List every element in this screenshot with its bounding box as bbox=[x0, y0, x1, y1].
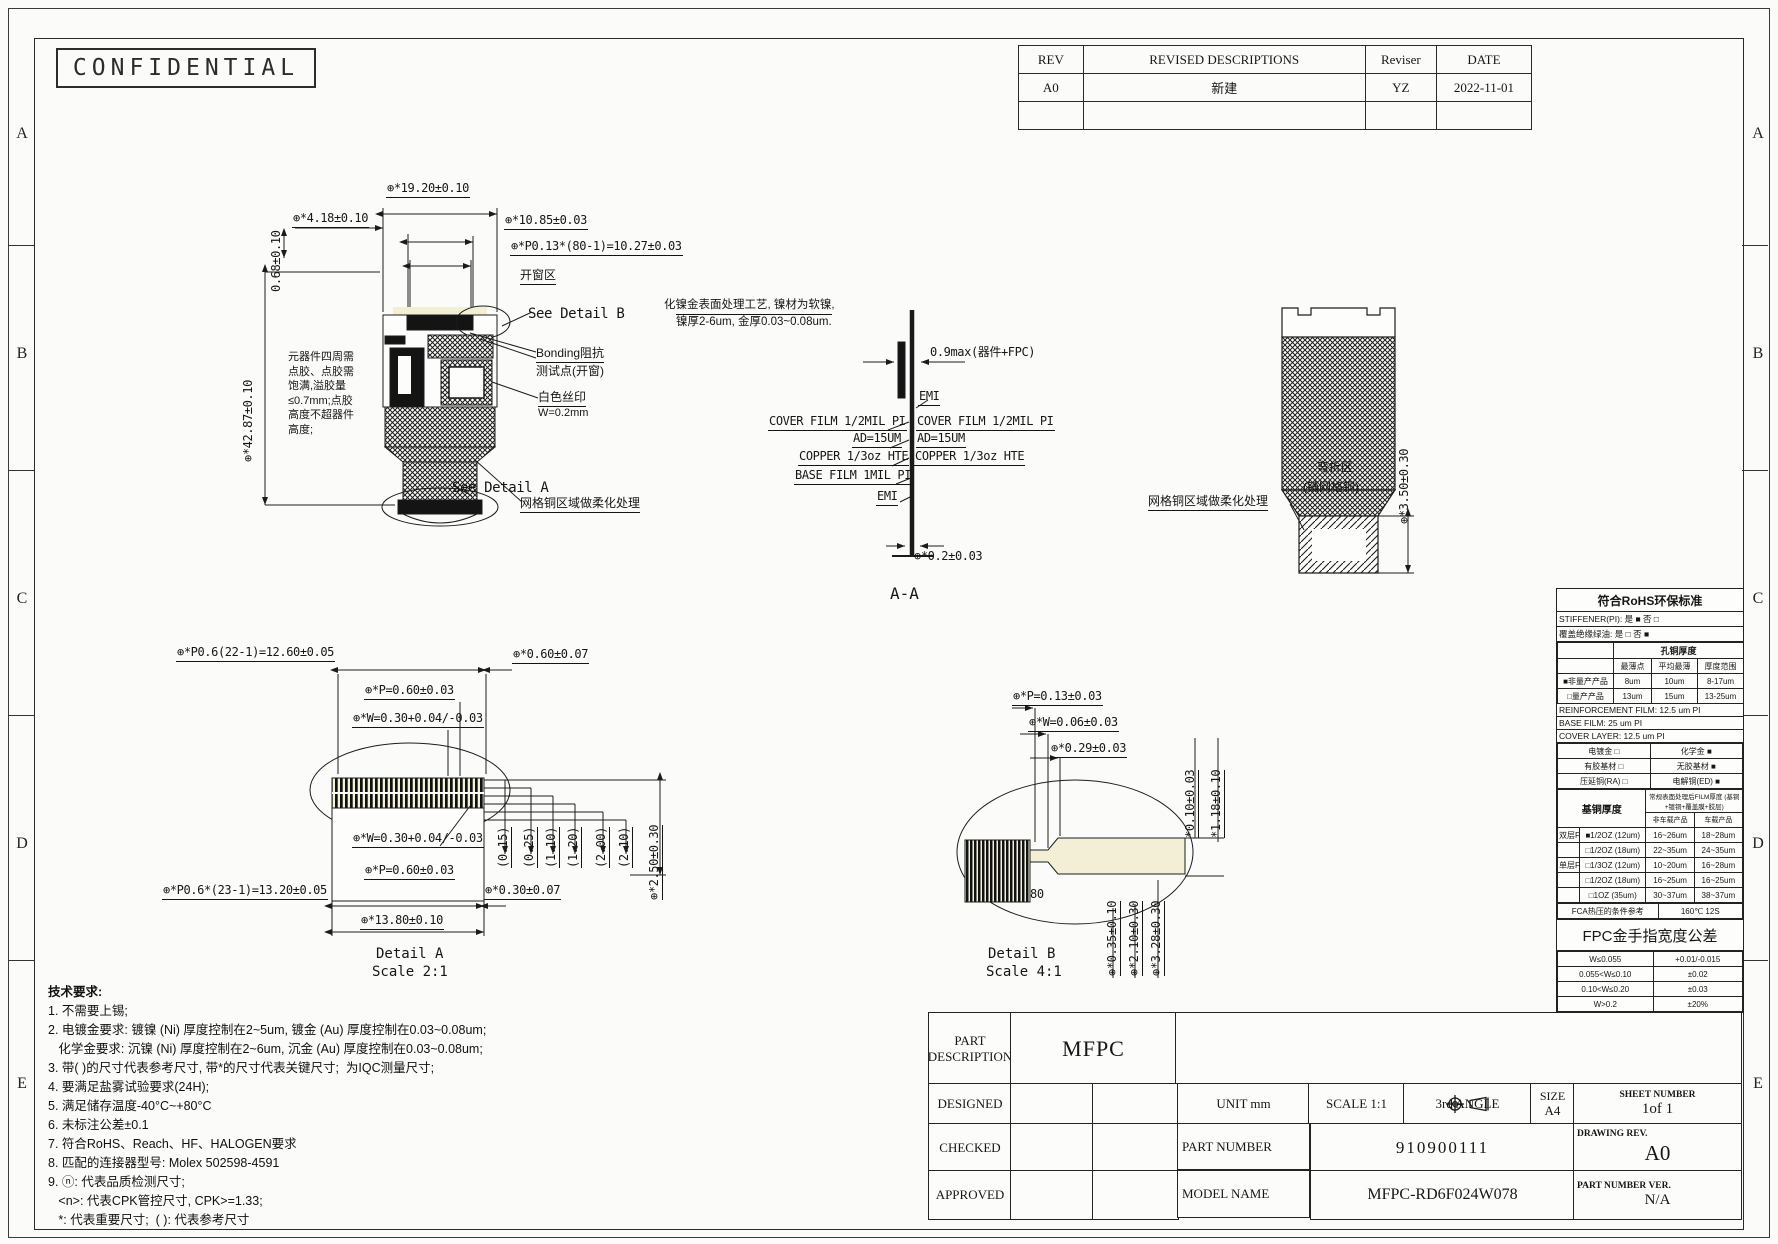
list-item: 3. 带( )的尺寸代表参考尺寸, 带*的尺寸代表关键尺寸; 为IQC测量尺寸; bbox=[48, 1059, 638, 1078]
fca-label: FCA热压的条件参考 bbox=[1558, 904, 1659, 919]
list-item: 4. 要满足盐雾试验要求(24H); bbox=[48, 1078, 638, 1097]
revision-header-row: REV REVISED DESCRIPTIONS Reviser DATE bbox=[1019, 46, 1532, 74]
table-cell: 无胶基材 ■ bbox=[1650, 759, 1743, 774]
table-cell: 15um bbox=[1652, 689, 1698, 704]
zone-tick bbox=[8, 715, 34, 716]
drawing-rev-label: DRAWING REV. bbox=[1574, 1129, 1648, 1140]
detail-b-dim-b2: ⊕*2.10±0.30 bbox=[1128, 901, 1143, 976]
reviser-header: Reviser bbox=[1365, 46, 1436, 74]
list-item: 高度不超器件 bbox=[288, 408, 380, 423]
zone-letter-right-a: A bbox=[1748, 125, 1768, 143]
table-cell: 16~28um bbox=[1694, 858, 1742, 873]
approved-label: APPROVED bbox=[928, 1170, 1012, 1220]
zone-letter-left-a: A bbox=[12, 125, 32, 143]
window-area-label: 开窗区 bbox=[520, 268, 556, 285]
section-dim-thickness: ⊕*0.2±0.03 bbox=[914, 550, 982, 564]
zone-tick bbox=[1742, 960, 1768, 961]
film-lines: REINFORCEMENT FILM: 12.5 um PIBASE FILM:… bbox=[1557, 704, 1743, 743]
detail-a-step-dim-2: (0.25) bbox=[523, 827, 538, 868]
scale-cell: SCALE 1:1 bbox=[1308, 1083, 1405, 1125]
detail-a-step-dim-5: (2.00) bbox=[595, 827, 610, 868]
detail-b-conductor-count: 80 bbox=[1030, 888, 1044, 902]
part-description-label: PART DESCRIPTION bbox=[928, 1012, 1012, 1085]
table-row: ■非量产产品8um10um8-17um bbox=[1558, 674, 1744, 689]
detail-a-dim-width-in: ⊕*W=0.30+0.04/-0.03 bbox=[352, 832, 484, 848]
list-item: STIFFENER(PI): 是 ■ 否 □ bbox=[1557, 612, 1743, 627]
surface-note-line2: 镍厚2-6um, 金厚0.03~0.08um. bbox=[676, 314, 832, 330]
table-cell bbox=[1558, 888, 1580, 903]
layer-coverfilm-left: COVER FILM 1/2MIL PI bbox=[768, 415, 907, 431]
description-value: 新建 bbox=[1083, 74, 1365, 102]
layer-ad-left: AD=15UM bbox=[852, 432, 902, 448]
table-row: 0.10<W≤0.20±0.03 bbox=[1558, 982, 1743, 997]
list-item: REINFORCEMENT FILM: 12.5 um PI bbox=[1557, 704, 1743, 717]
mesh-copper-label: 网格铜区域做柔化处理 bbox=[520, 496, 640, 513]
layer-basefilm-left: BASE FILM 1MIL PI bbox=[794, 469, 912, 485]
unit-cell: UNIT mm bbox=[1177, 1083, 1310, 1125]
detail-a-dim-total-width: ⊕*13.80±0.10 bbox=[360, 914, 444, 930]
table-row: 单层FPC□1/3OZ (12um)10~20um16~28um bbox=[1558, 858, 1743, 873]
detail-b-dim-gap: *0.10±0.03 bbox=[1184, 770, 1199, 838]
plan-dim-pitch: ⊕*P0.13*(80-1)=10.27±0.03 bbox=[510, 240, 683, 256]
table-cell: ■1/2OZ (12um) bbox=[1580, 828, 1646, 843]
see-detail-b-label: See Detail B bbox=[528, 306, 624, 322]
finger-tolerance-table: W≤0.055+0.01/-0.0150.055<W≤0.10±0.020.10… bbox=[1557, 951, 1743, 1012]
list-item: 化学金要求: 沉镍 (Ni) 厚度控制在2~6um, 沉金 (Au) 厚度控制在… bbox=[48, 1040, 638, 1059]
layer-emi-left: EMI bbox=[876, 490, 898, 506]
spec-table: 符合RoHS环保标准 STIFFENER(PI): 是 ■ 否 □覆盖绝缘绿油:… bbox=[1556, 588, 1744, 1013]
size-label: SIZE bbox=[1540, 1089, 1565, 1103]
base-copper-table: 基铜厚度 常规表面处理后FILM厚度 (基铜+镀铜+覆盖膜+胶层) 非车载产品 … bbox=[1557, 789, 1743, 903]
part-number-ver-label: PART NUMBER VER. bbox=[1574, 1181, 1671, 1192]
size-cell: SIZE A4 bbox=[1530, 1083, 1575, 1125]
table-row: 压延铜(RA) □电解铜(ED) ■ bbox=[1558, 774, 1743, 789]
plan-dim-offset: ⊕*4.18±0.10 bbox=[292, 212, 369, 228]
detail-a-dim-pitch-total-top: ⊕*P0.6(22-1)=12.60±0.05 bbox=[176, 646, 335, 662]
table-cell: ±0.02 bbox=[1653, 967, 1742, 982]
sheet-cell: SHEET NUMBER 1of 1 bbox=[1573, 1083, 1742, 1125]
list-item: 2. 电镀金要求: 镀镍 (Ni) 厚度控制在2~5um, 镀金 (Au) 厚度… bbox=[48, 1021, 638, 1040]
table-cell: 0.10<W≤0.20 bbox=[1558, 982, 1654, 997]
detail-b-dim-width: ⊕*W=0.06±0.03 bbox=[1028, 716, 1119, 732]
detail-a-step-dim-6: (2.10) bbox=[618, 827, 633, 868]
table-cell: 22~35um bbox=[1646, 843, 1694, 858]
list-item: COVER LAYER: 12.5 um PI bbox=[1557, 730, 1743, 743]
tech-notes: 技术要求: 1. 不需要上锡;2. 电镀金要求: 镀镍 (Ni) 厚度控制在2~… bbox=[48, 983, 638, 1230]
bend-mesh-label: 网格铜区域做柔化处理 bbox=[1148, 494, 1268, 511]
layer-emi-right: EMI bbox=[918, 390, 940, 406]
list-item: 饱满,溢胶量 bbox=[288, 379, 380, 394]
detail-b-dim-b1: ⊕*0.35±0.10 bbox=[1106, 901, 1121, 976]
zone-letter-right-e: E bbox=[1748, 1075, 1768, 1093]
table-cell: 8um bbox=[1614, 674, 1652, 689]
table-cell: 16~26um bbox=[1646, 828, 1694, 843]
table-cell: 10um bbox=[1652, 674, 1698, 689]
designed-date bbox=[1092, 1083, 1179, 1125]
detail-b-dim-b3: ⊕*3.28±0.30 bbox=[1150, 901, 1165, 976]
table-cell: 38~37um bbox=[1694, 888, 1742, 903]
table-cell: 24~35um bbox=[1694, 843, 1742, 858]
tech-notes-lines: 1. 不需要上锡;2. 电镀金要求: 镀镍 (Ni) 厚度控制在2~5um, 镀… bbox=[48, 1002, 638, 1230]
silkscreen-label-2: W=0.2mm bbox=[538, 406, 588, 420]
detail-a-dim-pitch-total-bottom: ⊕*P0.6*(23-1)=13.20±0.05 bbox=[162, 884, 328, 900]
size-value: A4 bbox=[1545, 1103, 1561, 1119]
detail-b-dim-height: *1.18±0.10 bbox=[1210, 770, 1225, 838]
table-cell: 有胶基材 □ bbox=[1558, 759, 1651, 774]
bend-zone-label-1: 弯折区 bbox=[1317, 460, 1353, 476]
table-cell: □量产产品 bbox=[1558, 689, 1614, 704]
see-detail-a-label: See Detail A bbox=[452, 480, 548, 496]
layer-coverfilm-right: COVER FILM 1/2MIL PI bbox=[916, 415, 1055, 431]
detail-a-step-dim-4: (1.20) bbox=[567, 827, 582, 868]
zone-letter-left-d: D bbox=[12, 835, 32, 853]
base-copper-h1: 基铜厚度 bbox=[1558, 790, 1646, 828]
reviser-value: YZ bbox=[1365, 74, 1436, 102]
section-caption: A-A bbox=[890, 584, 919, 603]
hole-copper-table: 孔铜厚度 最薄点 平均最薄 厚度范围 ■非量产产品8um10um8-17um□量… bbox=[1557, 642, 1744, 704]
list-item: 高度; bbox=[288, 423, 380, 438]
revision-empty-row bbox=[1019, 102, 1532, 130]
bend-view-drawing bbox=[1140, 290, 1440, 590]
list-item: BASE FILM: 25 um PI bbox=[1557, 717, 1743, 730]
table-cell: ±20% bbox=[1653, 997, 1742, 1012]
base-copper-h2: 常规表面处理后FILM厚度 (基铜+镀铜+覆盖膜+胶层) bbox=[1646, 790, 1743, 813]
drawing-rev-cell: DRAWING REV. A0 bbox=[1573, 1123, 1742, 1172]
date-value: 2022-11-01 bbox=[1436, 74, 1531, 102]
table-cell: 0.055<W≤0.10 bbox=[1558, 967, 1654, 982]
fca-table: FCA热压的条件参考 160℃ 12S bbox=[1557, 903, 1743, 919]
list-item: 点胶、点胶需 bbox=[288, 365, 380, 380]
list-item: 1. 不需要上锡; bbox=[48, 1002, 638, 1021]
bonding-label-2: 测试点(开窗) bbox=[536, 364, 604, 380]
table-cell: □1/3OZ (12um) bbox=[1580, 858, 1646, 873]
table-cell: 电镀金 □ bbox=[1558, 744, 1651, 759]
table-row: □1/2OZ (18um)16~25um16~25um bbox=[1558, 873, 1743, 888]
table-cell: □1/2OZ (18um) bbox=[1580, 873, 1646, 888]
table-cell: 电解铜(ED) ■ bbox=[1650, 774, 1743, 789]
plan-dim-edge: 0.68±0.10 bbox=[270, 231, 283, 292]
hole-copper-title: 孔铜厚度 bbox=[1614, 643, 1744, 659]
date-header: DATE bbox=[1436, 46, 1531, 74]
drawing-rev-value: A0 bbox=[1645, 1141, 1671, 1166]
zone-tick bbox=[8, 470, 34, 471]
table-cell bbox=[1558, 843, 1580, 858]
rev-header: REV bbox=[1019, 46, 1084, 74]
table-row: 有胶基材 □无胶基材 ■ bbox=[1558, 759, 1743, 774]
layer-copper-right: COPPER 1/3oz HTE bbox=[914, 450, 1025, 466]
sheet-number-label: SHEET NUMBER bbox=[1619, 1090, 1695, 1101]
zone-letter-left-c: C bbox=[12, 590, 32, 608]
section-dim-max: 0.9max(器件+FPC) bbox=[930, 346, 1035, 360]
designed-label: DESIGNED bbox=[928, 1083, 1012, 1125]
table-row: □1/2OZ (18um)22~35um24~35um bbox=[1558, 843, 1743, 858]
checked-signature bbox=[1010, 1123, 1094, 1172]
table-cell: 双层FPC bbox=[1558, 828, 1580, 843]
plan-dim-length: ⊕*42.87±0.10 bbox=[242, 380, 255, 462]
table-cell: □1/2OZ (18um) bbox=[1580, 843, 1646, 858]
table-cell: W>0.2 bbox=[1558, 997, 1654, 1012]
table-row: 双层FPC■1/2OZ (12um)16~26um18~28um bbox=[1558, 828, 1743, 843]
bend-zone-label-2: (铺网格铜) bbox=[1303, 480, 1359, 496]
table-row: W≤0.055+0.01/-0.015 bbox=[1558, 952, 1743, 967]
part-description-value: MFPC bbox=[1010, 1012, 1177, 1085]
bend-dim-height: ⊕*3.50±0.30 bbox=[1398, 449, 1411, 524]
revision-row: A0 新建 YZ 2022-11-01 bbox=[1019, 74, 1532, 102]
list-item: 元器件四周需 bbox=[288, 350, 380, 365]
zone-letter-left-b: B bbox=[12, 345, 32, 363]
zone-letter-right-c: C bbox=[1748, 590, 1768, 608]
detail-a-dim-pitch-in: ⊕*P=0.60±0.03 bbox=[364, 864, 455, 880]
sheet-number-value: 1of 1 bbox=[1642, 1101, 1673, 1118]
detail-a-dim-pad-width: ⊕*0.30±0.07 bbox=[484, 884, 561, 900]
approved-date bbox=[1092, 1170, 1179, 1220]
list-item: <n>: 代表CPK管控尺寸, CPK>=1.33; bbox=[48, 1192, 638, 1211]
detail-a-dim-height: ⊕*2.50±0.30 bbox=[648, 825, 663, 900]
table-cell: 18~28um bbox=[1694, 828, 1742, 843]
zone-letter-right-b: B bbox=[1748, 345, 1768, 363]
table-cell: 10~20um bbox=[1646, 858, 1694, 873]
zone-tick bbox=[1742, 245, 1768, 246]
part-number-ver-cell: PART NUMBER VER. N/A bbox=[1573, 1170, 1742, 1220]
list-item: 覆盖绝缘绿油: 是 □ 否 ■ bbox=[1557, 627, 1743, 642]
table-cell: 单层FPC bbox=[1558, 858, 1580, 873]
zone-tick bbox=[8, 960, 34, 961]
detail-a-dim-width-top: ⊕*W=0.30+0.04/-0.03 bbox=[352, 712, 484, 728]
designed-signature bbox=[1010, 1083, 1094, 1125]
finger-tolerance-title: FPC金手指宽度公差 bbox=[1557, 919, 1743, 951]
detail-b-dim-pitch: ⊕*P=0.13±0.03 bbox=[1012, 690, 1103, 706]
list-item: 8. 匹配的连接器型号: Molex 502598-4591 bbox=[48, 1154, 638, 1173]
zone-letter-left-e: E bbox=[12, 1075, 32, 1093]
detail-a-step-dim-3: (1.10) bbox=[545, 827, 560, 868]
table-cell: 16~25um bbox=[1694, 873, 1742, 888]
bonding-label-1: Bonding阻抗 bbox=[536, 346, 604, 363]
rohs-title: 符合RoHS环保标准 bbox=[1557, 589, 1743, 612]
layer-copper-left: COPPER 1/3oz HTE bbox=[798, 450, 909, 466]
silkscreen-label-1: 白色丝印 bbox=[538, 390, 586, 407]
title-block: PART DESCRIPTION MFPC DESIGNED UNIT mm S… bbox=[928, 1012, 1740, 1218]
table-cell: ■非量产产品 bbox=[1558, 674, 1614, 689]
fca-value: 160℃ 12S bbox=[1658, 904, 1742, 919]
zone-tick bbox=[8, 245, 34, 246]
detail-a-caption: Detail A bbox=[376, 946, 443, 962]
list-item: 6. 未标注公差±0.1 bbox=[48, 1116, 638, 1135]
table-cell: ±0.03 bbox=[1653, 982, 1742, 997]
confidential-stamp: CONFIDENTIAL bbox=[56, 48, 316, 88]
table-cell: 压延铜(RA) □ bbox=[1558, 774, 1651, 789]
table-cell bbox=[1558, 873, 1580, 888]
zone-letter-right-d: D bbox=[1748, 835, 1768, 853]
detail-a-dim-pitch-top: ⊕*P=0.60±0.03 bbox=[364, 684, 455, 700]
table-cell: 16~25um bbox=[1646, 873, 1694, 888]
table-row: □量产产品13um15um13-25um bbox=[1558, 689, 1744, 704]
table-cell: 化学金 ■ bbox=[1650, 744, 1743, 759]
plan-dim-width: ⊕*19.20±0.10 bbox=[386, 182, 470, 198]
table-cell: W≤0.055 bbox=[1558, 952, 1654, 967]
approved-signature bbox=[1010, 1170, 1094, 1220]
table-row: 0.055<W≤0.10±0.02 bbox=[1558, 967, 1743, 982]
detail-a-dim-end-width: ⊕*0.60±0.07 bbox=[512, 648, 589, 664]
detail-b-scale: Scale 4:1 bbox=[986, 964, 1062, 980]
revised-descriptions-header: REVISED DESCRIPTIONS bbox=[1083, 46, 1365, 74]
table-row: W>0.2±20% bbox=[1558, 997, 1743, 1012]
list-item: 7. 符合RoHS、Reach、HF、HALOGEN要求 bbox=[48, 1135, 638, 1154]
table-cell: 13um bbox=[1614, 689, 1652, 704]
table-cell: +0.01/-0.015 bbox=[1653, 952, 1742, 967]
rev-value: A0 bbox=[1019, 74, 1084, 102]
detail-b-dim-offset: ⊕*0.29±0.03 bbox=[1050, 742, 1127, 758]
detail-a-scale: Scale 2:1 bbox=[372, 964, 448, 980]
revision-table: REV REVISED DESCRIPTIONS Reviser DATE A0… bbox=[1018, 45, 1532, 130]
title-block-empty-top bbox=[1175, 1012, 1742, 1085]
drawing-sheet: A B C D E A B C D E CONFIDENTIAL REV REV… bbox=[0, 0, 1778, 1244]
table-cell: 8-17um bbox=[1698, 674, 1744, 689]
material-table: 电镀金 □化学金 ■有胶基材 □无胶基材 ■压延铜(RA) □电解铜(ED) ■ bbox=[1557, 743, 1743, 789]
glue-note: 元器件四周需点胶、点胶需饱满,溢胶量≤0.7mm;点胶高度不超器件高度; bbox=[288, 350, 380, 437]
table-cell: 13-25um bbox=[1698, 689, 1744, 704]
table-row: 电镀金 □化学金 ■ bbox=[1558, 744, 1743, 759]
spec-option-lines: STIFFENER(PI): 是 ■ 否 □覆盖绝缘绿油: 是 □ 否 ■ bbox=[1557, 612, 1743, 642]
angle-cell: 3rd ANGLE bbox=[1403, 1083, 1532, 1125]
list-item: 9. ⓝ: 代表品质检测尺寸; bbox=[48, 1173, 638, 1192]
detail-b-caption: Detail B bbox=[988, 946, 1055, 962]
part-number-label: PART NUMBER bbox=[1177, 1123, 1310, 1170]
checked-date bbox=[1092, 1123, 1179, 1172]
list-item: ≤0.7mm;点胶 bbox=[288, 394, 380, 409]
list-item: 5. 满足储存温度-40°C~+80°C bbox=[48, 1097, 638, 1116]
detail-a-step-dim-1: (0.15) bbox=[497, 827, 512, 868]
tech-notes-title: 技术要求: bbox=[48, 983, 638, 1002]
layer-ad-right: AD=15UM bbox=[916, 432, 966, 448]
model-name-value: MFPC-RD6F024W078 bbox=[1310, 1170, 1575, 1220]
table-row: □1OZ (35um)30~37um38~37um bbox=[1558, 888, 1743, 903]
checked-label: CHECKED bbox=[928, 1123, 1012, 1172]
zone-tick bbox=[1742, 715, 1768, 716]
third-angle-projection-icon bbox=[1446, 1094, 1490, 1114]
table-cell: □1OZ (35um) bbox=[1580, 888, 1646, 903]
table-cell: 30~37um bbox=[1646, 888, 1694, 903]
zone-tick bbox=[1742, 470, 1768, 471]
part-number-ver-value: N/A bbox=[1645, 1192, 1671, 1209]
plan-dim-finger: ⊕*10.85±0.03 bbox=[504, 214, 588, 230]
list-item: *: 代表重要尺寸; ( ): 代表参考尺寸 bbox=[48, 1211, 638, 1230]
model-name-label: MODEL NAME bbox=[1177, 1170, 1310, 1218]
part-number-value: 910900111 bbox=[1310, 1123, 1575, 1172]
surface-note-line1: 化镍金表面处理工艺, 镍材为软镍, bbox=[664, 298, 835, 313]
